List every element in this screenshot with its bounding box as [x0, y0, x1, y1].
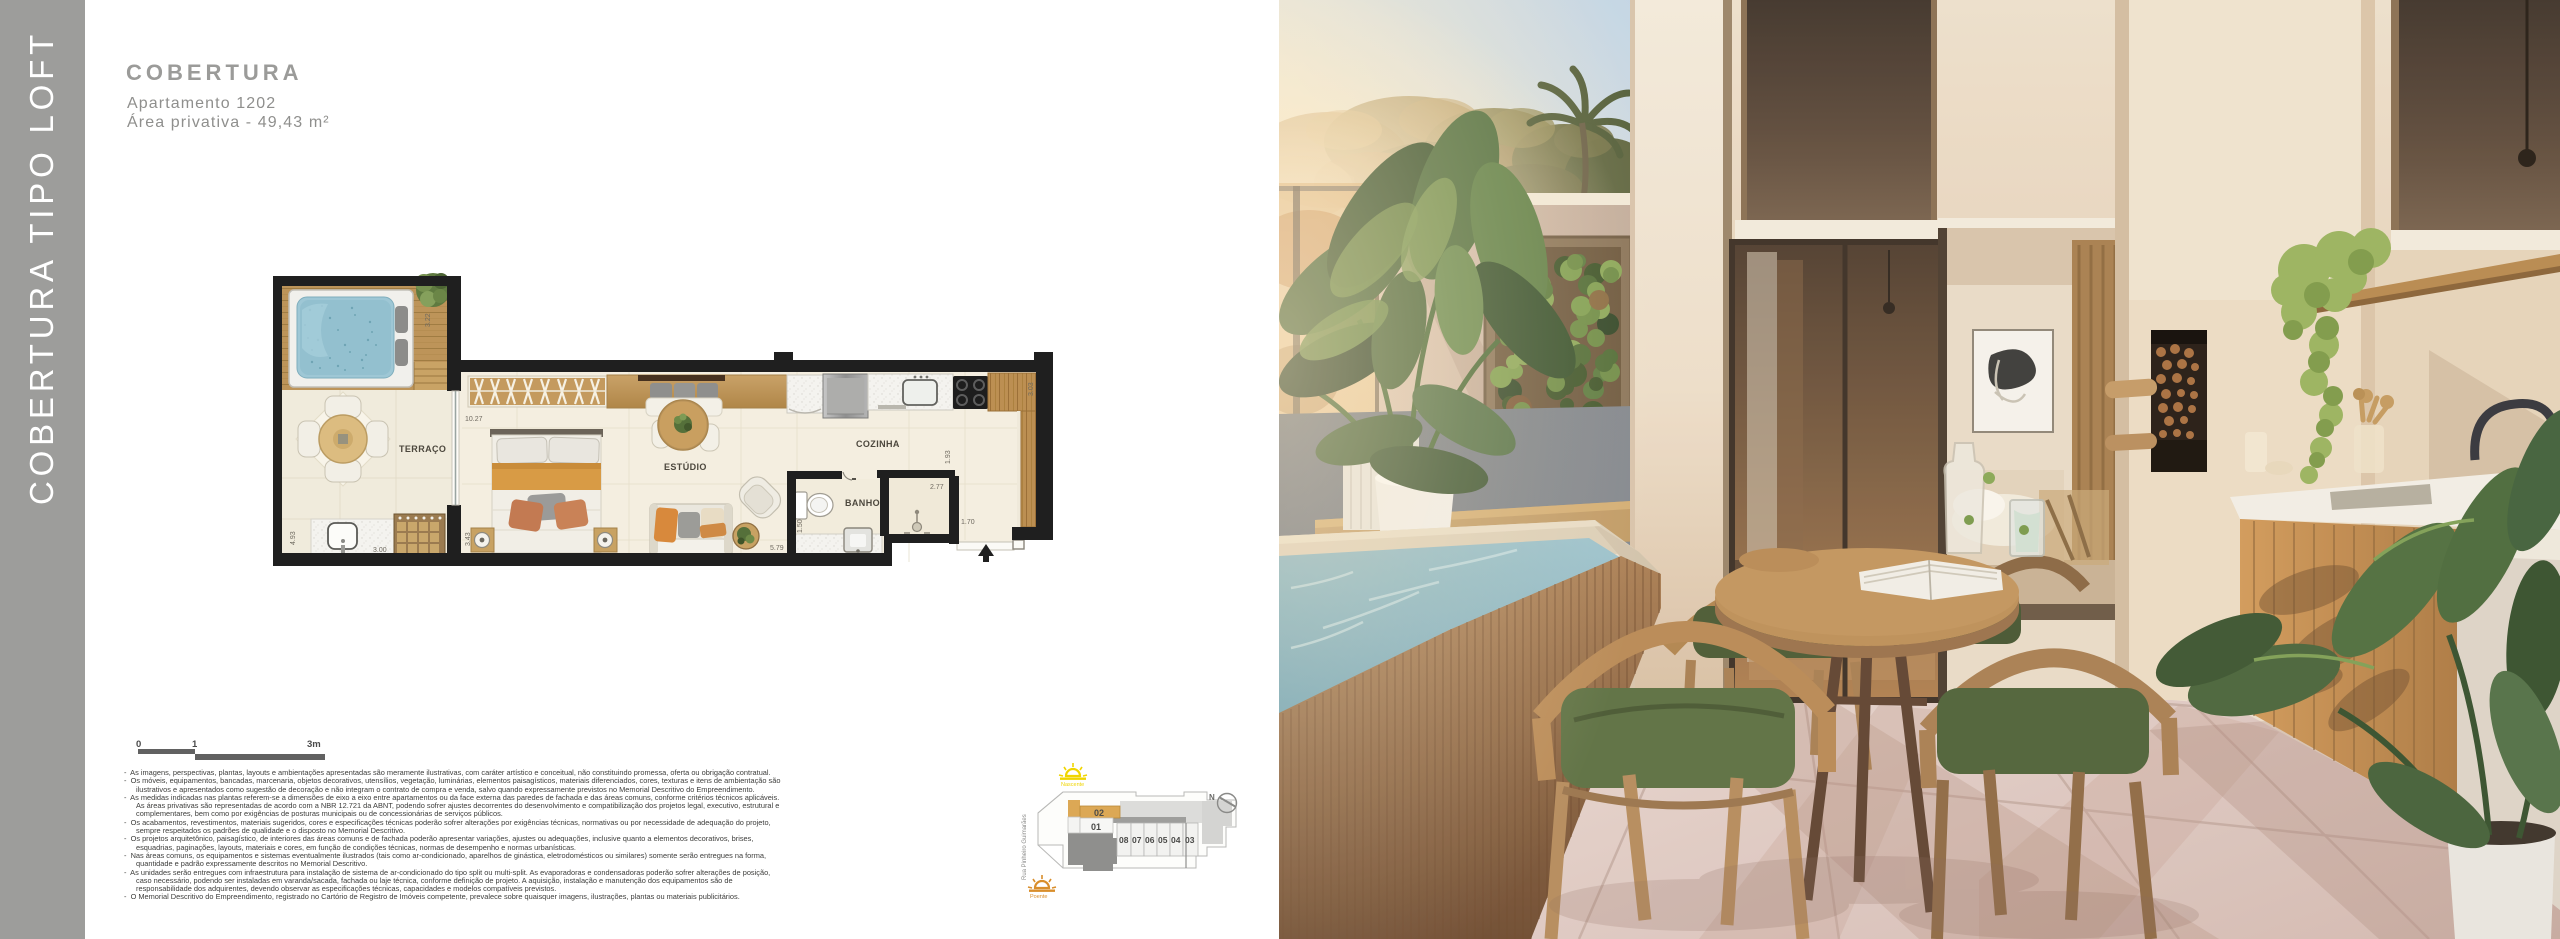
svg-text:04: 04 [1171, 835, 1181, 845]
svg-text:1.93: 1.93 [945, 450, 952, 464]
svg-text:ESTÚDIO: ESTÚDIO [664, 461, 707, 472]
svg-text:1.70: 1.70 [961, 519, 975, 526]
svg-text:08: 08 [1119, 835, 1129, 845]
svg-text:3.03: 3.03 [1028, 382, 1035, 396]
svg-text:07: 07 [1132, 835, 1142, 845]
svg-text:Poente: Poente [1030, 894, 1047, 900]
svg-text:2.77: 2.77 [930, 484, 944, 491]
svg-text:05: 05 [1158, 835, 1168, 845]
svg-text:BANHO: BANHO [845, 498, 880, 508]
svg-text:03: 03 [1185, 835, 1195, 845]
svg-text:4.93: 4.93 [290, 531, 297, 545]
svg-text:1.50: 1.50 [797, 519, 804, 533]
svg-text:3.00: 3.00 [373, 547, 387, 554]
svg-text:02: 02 [1094, 808, 1104, 818]
svg-text:Rua Pinheiro Guimarães: Rua Pinheiro Guimarães [1022, 814, 1028, 880]
svg-text:Nascente: Nascente [1061, 782, 1084, 788]
svg-text:3.43: 3.43 [465, 532, 472, 546]
svg-text:TERRAÇO: TERRAÇO [399, 444, 446, 454]
svg-text:10.27: 10.27 [465, 416, 483, 423]
svg-text:COZINHA: COZINHA [856, 439, 900, 449]
svg-text:06: 06 [1145, 835, 1155, 845]
svg-text:3.22: 3.22 [425, 313, 432, 327]
svg-text:5.79: 5.79 [770, 545, 784, 552]
svg-text:N: N [1209, 793, 1215, 802]
svg-text:01: 01 [1091, 822, 1101, 832]
